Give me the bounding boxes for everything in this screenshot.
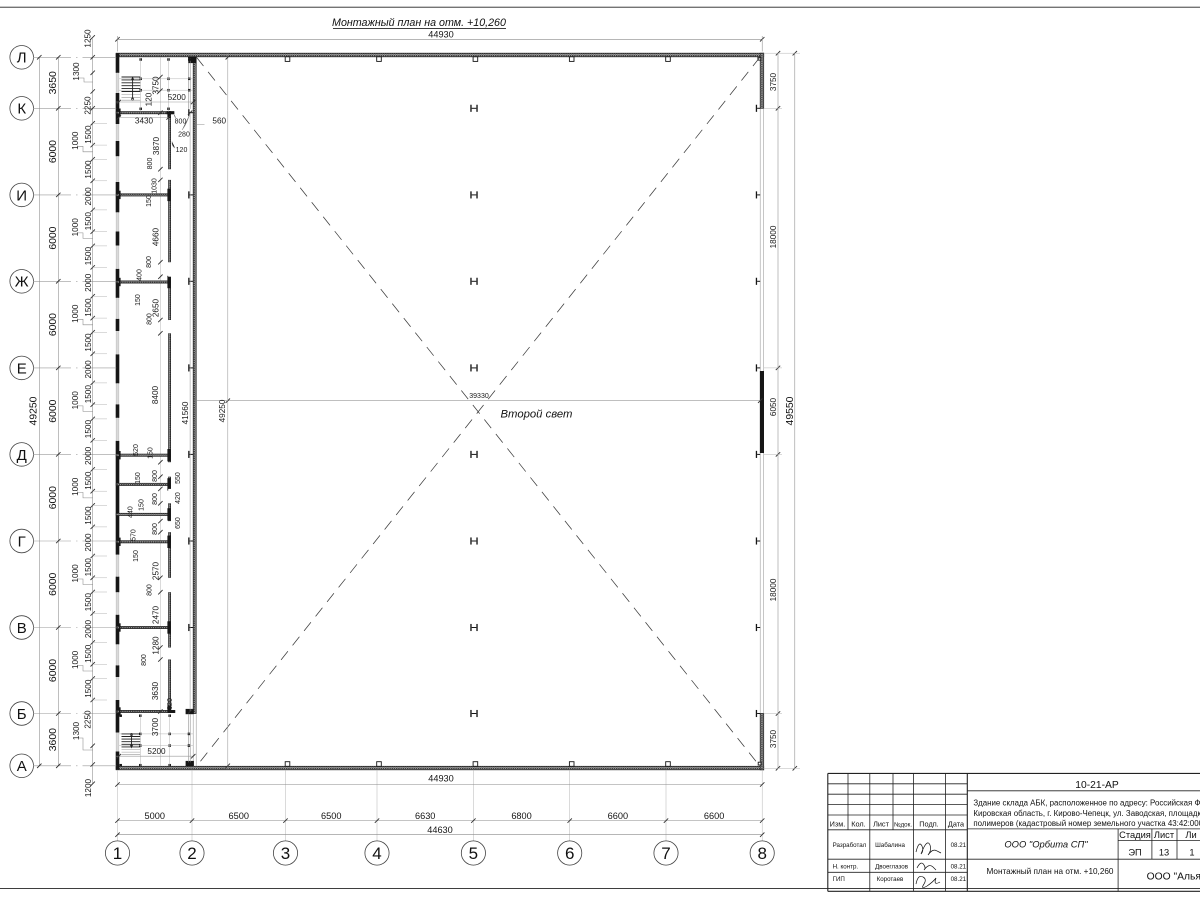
svg-text:08.21: 08.21 <box>951 864 967 871</box>
svg-text:800: 800 <box>152 470 159 482</box>
svg-text:49250: 49250 <box>28 396 39 425</box>
svg-text:6000: 6000 <box>48 486 59 509</box>
svg-text:Б: Б <box>17 706 27 723</box>
svg-text:10-21-АР: 10-21-АР <box>1075 780 1119 791</box>
svg-text:1280: 1280 <box>151 636 160 655</box>
svg-text:2000: 2000 <box>84 187 93 206</box>
svg-text:800: 800 <box>147 158 154 170</box>
svg-text:560: 560 <box>212 116 226 125</box>
svg-text:1500: 1500 <box>84 558 93 577</box>
svg-text:Лист: Лист <box>873 820 890 829</box>
svg-text:3750: 3750 <box>769 72 778 91</box>
svg-text:1250: 1250 <box>84 29 93 48</box>
svg-text:570: 570 <box>131 529 138 541</box>
svg-text:Шабалина: Шабалина <box>875 842 905 849</box>
svg-text:1000: 1000 <box>71 477 80 496</box>
svg-text:120: 120 <box>176 147 188 154</box>
svg-text:7: 7 <box>661 844 670 863</box>
svg-text:Дата: Дата <box>948 820 965 829</box>
svg-text:1500: 1500 <box>84 471 93 490</box>
svg-text:Кол.: Кол. <box>851 820 865 829</box>
svg-text:49550: 49550 <box>785 396 796 425</box>
svg-text:1500: 1500 <box>84 679 93 698</box>
svg-text:800: 800 <box>141 654 148 666</box>
svg-text:8: 8 <box>757 844 766 863</box>
svg-text:5: 5 <box>469 844 478 863</box>
svg-text:2000: 2000 <box>84 533 93 552</box>
svg-text:6000: 6000 <box>48 226 59 249</box>
svg-text:1: 1 <box>1189 848 1194 858</box>
svg-text:6: 6 <box>565 844 574 863</box>
svg-text:800: 800 <box>152 493 159 505</box>
svg-text:6000: 6000 <box>48 140 59 163</box>
svg-text:2250: 2250 <box>83 710 92 729</box>
svg-text:3750: 3750 <box>769 729 778 748</box>
svg-text:1030: 1030 <box>151 178 158 194</box>
svg-text:В: В <box>17 620 27 637</box>
svg-text:1000: 1000 <box>71 650 80 669</box>
svg-text:№док.: №док. <box>894 821 912 828</box>
svg-text:1500: 1500 <box>84 506 93 525</box>
svg-text:5000: 5000 <box>145 811 165 821</box>
svg-text:550: 550 <box>175 472 182 484</box>
svg-text:2250: 2250 <box>83 96 92 115</box>
svg-text:ЭП: ЭП <box>1128 848 1141 858</box>
svg-text:6600: 6600 <box>608 811 628 821</box>
svg-text:Г: Г <box>18 533 26 550</box>
svg-text:1000: 1000 <box>71 131 80 150</box>
svg-text:Второй свет: Второй свет <box>501 408 573 420</box>
svg-text:Подп.: Подп. <box>919 820 938 829</box>
svg-text:4660: 4660 <box>151 227 160 246</box>
svg-text:1500: 1500 <box>84 385 93 404</box>
svg-text:800: 800 <box>175 119 187 126</box>
svg-text:1000: 1000 <box>71 304 80 323</box>
svg-text:150: 150 <box>146 195 153 207</box>
svg-text:6630: 6630 <box>415 811 435 821</box>
svg-text:Изм.: Изм. <box>830 820 846 829</box>
svg-text:44930: 44930 <box>428 774 454 784</box>
svg-text:1500: 1500 <box>84 160 93 179</box>
svg-text:2000: 2000 <box>84 446 93 465</box>
svg-text:6000: 6000 <box>48 572 59 595</box>
svg-text:5200: 5200 <box>147 747 166 756</box>
svg-text:3750: 3750 <box>151 76 160 95</box>
svg-text:1500: 1500 <box>84 593 93 612</box>
svg-text:440: 440 <box>127 506 134 518</box>
svg-text:Монтажный план на отм. +10,260: Монтажный план на отм. +10,260 <box>987 867 1114 876</box>
svg-text:08.21: 08.21 <box>951 842 967 849</box>
svg-text:4: 4 <box>372 844 381 863</box>
svg-text:3430: 3430 <box>135 117 154 126</box>
svg-text:Е: Е <box>17 360 27 377</box>
svg-text:1500: 1500 <box>84 125 93 144</box>
svg-text:1500: 1500 <box>84 212 93 231</box>
svg-text:Ж: Ж <box>15 274 29 291</box>
svg-text:6500: 6500 <box>321 811 341 821</box>
svg-text:3650: 3650 <box>48 71 59 94</box>
svg-text:А: А <box>17 758 27 775</box>
svg-text:520: 520 <box>133 444 140 456</box>
svg-text:44930: 44930 <box>428 29 454 39</box>
svg-text:49250: 49250 <box>218 399 227 422</box>
svg-text:150: 150 <box>133 550 140 562</box>
svg-text:1000: 1000 <box>71 564 80 583</box>
svg-text:800: 800 <box>152 523 159 535</box>
svg-text:Л: Л <box>17 50 27 67</box>
svg-text:Разработал: Разработал <box>833 842 867 849</box>
svg-text:18000: 18000 <box>769 578 778 601</box>
svg-text:Двоеглазов: Двоеглазов <box>875 864 909 871</box>
svg-text:650: 650 <box>175 517 182 529</box>
svg-text:Стадия: Стадия <box>1119 830 1151 840</box>
svg-text:800: 800 <box>146 256 153 268</box>
svg-text:6800: 6800 <box>511 811 531 821</box>
svg-text:280: 280 <box>178 131 190 138</box>
svg-text:41560: 41560 <box>181 401 190 424</box>
svg-text:6500: 6500 <box>229 811 249 821</box>
svg-text:1500: 1500 <box>84 298 93 317</box>
svg-text:400: 400 <box>136 269 143 281</box>
svg-text:полимеров (кадастровый номер з: полимеров (кадастровый номер земельного … <box>973 819 1200 828</box>
svg-text:2: 2 <box>187 844 196 863</box>
svg-text:2570: 2570 <box>152 561 161 580</box>
svg-text:1500: 1500 <box>84 644 93 663</box>
svg-text:44630: 44630 <box>427 825 453 835</box>
svg-text:800: 800 <box>146 313 153 325</box>
svg-text:И: И <box>16 187 27 204</box>
svg-text:1500: 1500 <box>84 420 93 439</box>
svg-text:3: 3 <box>281 844 290 863</box>
svg-text:3870: 3870 <box>152 136 161 155</box>
svg-text:120: 120 <box>167 698 174 710</box>
svg-text:ГИП: ГИП <box>833 876 845 883</box>
svg-text:2000: 2000 <box>84 273 93 292</box>
svg-text:Монтажный план на отм. +10,260: Монтажный план на отм. +10,260 <box>332 17 506 29</box>
svg-text:6050: 6050 <box>769 397 778 416</box>
svg-text:Коротаев: Коротаев <box>877 876 904 883</box>
svg-text:ООО "Орбита СП": ООО "Орбита СП" <box>1004 838 1088 849</box>
svg-text:Кировская область, г. Кирово-Ч: Кировская область, г. Кирово-Чепецк, ул.… <box>973 809 1200 818</box>
svg-text:6600: 6600 <box>704 811 724 821</box>
svg-text:1500: 1500 <box>84 333 93 352</box>
svg-text:Д: Д <box>17 447 27 464</box>
svg-text:150: 150 <box>139 499 146 511</box>
svg-text:1300: 1300 <box>72 721 81 740</box>
svg-text:13: 13 <box>1159 848 1169 858</box>
svg-text:Лист: Лист <box>1154 830 1175 840</box>
svg-text:8400: 8400 <box>151 385 160 404</box>
svg-text:1000: 1000 <box>71 391 80 410</box>
svg-text:18000: 18000 <box>769 225 778 248</box>
svg-text:1500: 1500 <box>84 247 93 266</box>
svg-text:3630: 3630 <box>151 681 160 700</box>
svg-text:6000: 6000 <box>48 659 59 682</box>
svg-text:Здание склада АБК, расположенн: Здание склада АБК, расположенное по адре… <box>973 799 1200 808</box>
svg-text:150: 150 <box>135 472 142 484</box>
svg-text:6000: 6000 <box>48 399 59 422</box>
svg-text:1000: 1000 <box>71 218 80 237</box>
svg-text:120: 120 <box>144 92 153 106</box>
svg-text:1: 1 <box>113 844 122 863</box>
svg-text:2000: 2000 <box>84 360 93 379</box>
svg-text:3700: 3700 <box>151 717 160 736</box>
svg-text:39330: 39330 <box>469 393 489 400</box>
svg-text:Ли: Ли <box>1185 830 1196 840</box>
svg-text:150: 150 <box>135 294 142 306</box>
svg-text:3600: 3600 <box>48 728 59 751</box>
svg-text:800: 800 <box>147 584 154 596</box>
svg-text:2000: 2000 <box>84 619 93 638</box>
svg-text:2470: 2470 <box>152 605 161 624</box>
svg-text:150: 150 <box>147 447 154 459</box>
svg-text:08.21: 08.21 <box>951 876 967 883</box>
svg-text:1200: 1200 <box>84 778 93 797</box>
svg-text:ООО "Альянс: ООО "Альянс <box>1147 871 1200 882</box>
svg-text:420: 420 <box>175 492 182 504</box>
svg-text:К: К <box>17 101 26 118</box>
svg-text:5200: 5200 <box>168 93 187 102</box>
svg-text:6000: 6000 <box>48 313 59 336</box>
svg-text:Н. контр.: Н. контр. <box>833 864 859 871</box>
